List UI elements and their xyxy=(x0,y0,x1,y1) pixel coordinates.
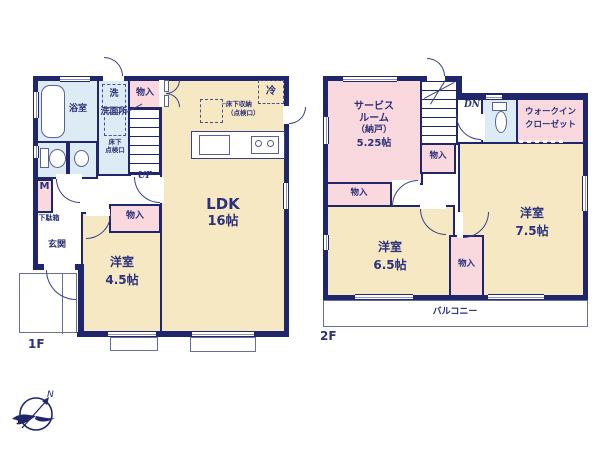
burner-left-icon xyxy=(255,140,262,147)
stairs-2f-door-arc xyxy=(427,58,445,76)
floor-2-label: 2F xyxy=(320,330,350,343)
bedroom-right-size: 7.5帖 xyxy=(508,225,556,238)
terrace-step-bedroom xyxy=(110,337,158,351)
service-closet-label: 物入 xyxy=(338,189,380,198)
floor-plan-canvas: 浴室 洗 洗面所 床下 点検口 物入 UP M 下駄箱 玄関 洋室 4.5帖 物… xyxy=(0,0,600,450)
meter-box-label: M xyxy=(38,181,51,192)
kitchen-sink-icon xyxy=(199,135,230,155)
ldk-size-label: 16帖 xyxy=(201,215,245,229)
washroom-door-arc xyxy=(104,57,123,76)
hall-closet-2f-label: 物入 xyxy=(424,152,452,161)
stairs-up-label: UP xyxy=(134,172,156,182)
bedroom-right-label: 洋室 xyxy=(510,207,554,220)
floor-2-wall-stairs-right xyxy=(456,76,462,100)
window-bedroom-left-bottom xyxy=(355,294,413,300)
fridge-label: 冷 xyxy=(264,86,278,97)
window-toilet-left xyxy=(33,146,39,158)
burner-right-icon xyxy=(267,140,274,147)
window-bath-top xyxy=(60,76,90,82)
toilet-bowl-2f-icon xyxy=(495,111,507,133)
window-toilet-top xyxy=(486,94,502,100)
ldk-label: LDK xyxy=(200,196,246,213)
floor-2-top-cover xyxy=(461,71,593,93)
window-ldk-bottom xyxy=(192,331,254,337)
service-room-size: 5.25帖 xyxy=(346,138,402,149)
window-bedroom-right-bottom xyxy=(488,294,544,300)
bedroom-1f-size: 4.5帖 xyxy=(98,274,146,287)
compass-north-label: N xyxy=(47,390,54,400)
shoe-cabinet-label: 下駄箱 xyxy=(33,215,65,223)
bedroom-closet-2f-label: 物入 xyxy=(452,260,481,269)
window-bedroom-left-side xyxy=(323,235,329,250)
underfloor-storage-box xyxy=(200,99,223,123)
bathroom-label: 浴室 xyxy=(58,105,98,115)
terrace-step-ldk xyxy=(190,337,256,352)
washbasin-icon xyxy=(74,150,89,167)
washroom-label: 洗面所 xyxy=(96,108,132,118)
balcony-label: バルコニー xyxy=(425,308,485,318)
window-service-left xyxy=(323,117,329,144)
washer-label: 洗 xyxy=(108,90,120,100)
window-service-top xyxy=(343,76,397,82)
underfloor-access-label-2: 点検口 xyxy=(99,147,131,154)
window-ldk-right xyxy=(283,183,289,209)
window-bath-left xyxy=(33,92,39,118)
bedroom-left-label: 洋室 xyxy=(368,241,412,254)
compass-icon: N xyxy=(10,386,64,440)
window-bedroom-bottom xyxy=(108,331,156,337)
toilet-tank-1f xyxy=(40,148,49,168)
staircase-1f xyxy=(128,107,161,175)
washroom-door-gap xyxy=(103,76,124,81)
service-room-label-1: サービス xyxy=(346,101,402,112)
underfloor-storage-label-1: ─床下収納 xyxy=(222,101,268,108)
walkin-closet-label-2: クローゼット xyxy=(518,121,583,130)
bedroom-1f-label: 洋室 xyxy=(100,256,144,269)
floor-1-label: 1F xyxy=(28,338,58,351)
service-room-label-3: （納戸） xyxy=(348,126,400,136)
bedroom-closet-1f-label: 物入 xyxy=(120,212,150,222)
toilet-bowl-1f-icon xyxy=(49,149,66,168)
stairs-down-label: DN xyxy=(461,101,483,111)
compass-needle xyxy=(22,399,48,428)
underfloor-storage-label-2: （点検口） xyxy=(227,110,267,117)
service-room-label-2: ルーム xyxy=(346,113,402,124)
bedroom-left-size: 6.5帖 xyxy=(366,259,414,272)
toilet-tank-2f xyxy=(492,102,507,111)
walkin-closet-hatch xyxy=(519,140,565,143)
window-bedroom-right-side xyxy=(582,176,588,211)
entrance-label: 玄関 xyxy=(43,241,71,251)
floor-2-wall-top-right xyxy=(458,93,588,100)
kitchen-door-arc xyxy=(289,107,306,124)
compass-bird-wing-left xyxy=(12,415,36,425)
hall-closet-1f-label: 物入 xyxy=(130,89,160,99)
entrance-wall-v xyxy=(78,264,84,337)
stairs-2f-door-gap xyxy=(427,76,445,81)
walkin-closet-label-1: ウォークイン xyxy=(518,108,583,117)
